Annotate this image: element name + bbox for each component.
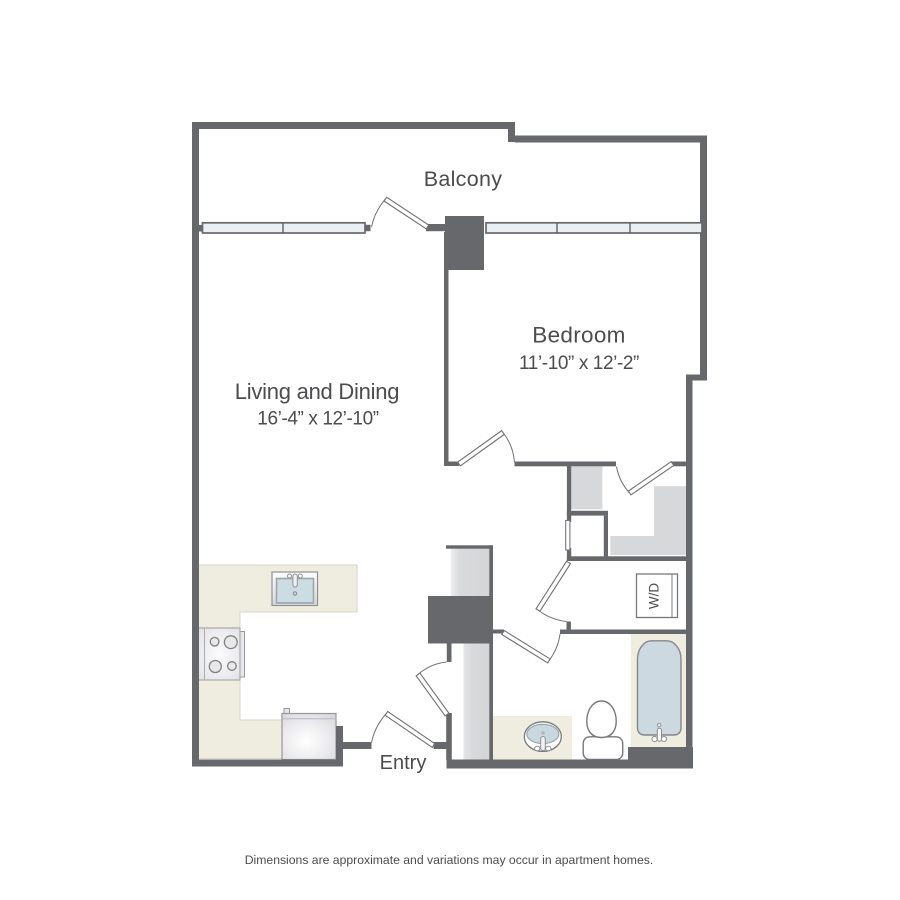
svg-text:16’-4” x 12’-10”: 16’-4” x 12’-10”: [257, 409, 378, 430]
svg-text:Entry: Entry: [380, 752, 427, 774]
svg-text:11’-10” x 12’-2”: 11’-10” x 12’-2”: [519, 353, 639, 374]
svg-text:W/D: W/D: [647, 583, 662, 609]
svg-text:Living and Dining: Living and Dining: [235, 379, 400, 404]
svg-text:Bedroom: Bedroom: [532, 323, 625, 348]
svg-text:Balcony: Balcony: [424, 167, 503, 191]
svg-text:Dimensions are approximate and: Dimensions are approximate and variation…: [245, 853, 653, 867]
